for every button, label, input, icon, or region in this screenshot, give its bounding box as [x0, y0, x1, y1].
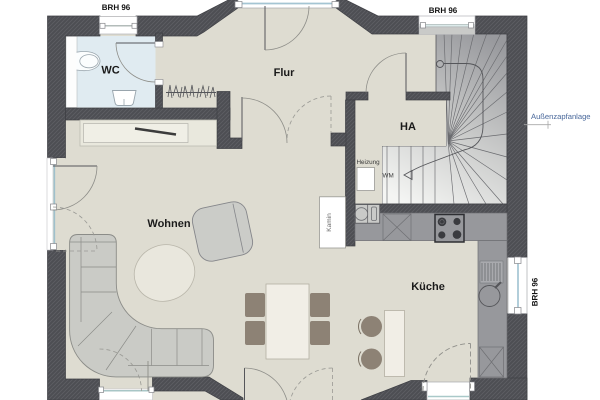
svg-text:Flur: Flur [274, 67, 295, 79]
svg-text:HA: HA [400, 121, 416, 133]
svg-text:Wohnen: Wohnen [147, 218, 190, 230]
svg-text:Außenzapfanlage: Außenzapfanlage [531, 112, 591, 121]
svg-text:Küche: Küche [411, 281, 445, 293]
svg-text:BRH 96: BRH 96 [429, 6, 458, 15]
svg-text:Heizung: Heizung [357, 159, 381, 166]
svg-text:Kamin: Kamin [326, 213, 333, 232]
svg-text:WM: WM [383, 173, 394, 180]
svg-text:BRH 96: BRH 96 [531, 277, 540, 306]
svg-text:WC: WC [101, 65, 119, 77]
svg-text:BRH 96: BRH 96 [102, 3, 131, 12]
